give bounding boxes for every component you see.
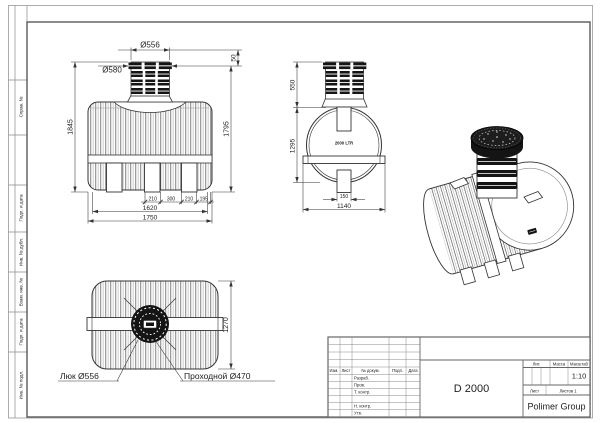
tb-row-prov: Пров. — [354, 383, 365, 388]
tb-stat-massa: Масса — [553, 362, 566, 367]
frame-label-vzam: Взам. инв. № — [19, 278, 24, 307]
label-manhole: Люк Ø556 — [60, 371, 99, 381]
front-view: Ø556 Ø580 50 1845 1795 210 300 210 195 1… — [68, 41, 243, 224]
label-passage: Проходной Ø470 — [184, 371, 251, 381]
dim-dia-lid: Ø580 — [102, 66, 122, 75]
dim-neck-height: 550 — [290, 79, 297, 90]
side-bottom-tab — [337, 170, 351, 193]
side-top-tab — [337, 107, 351, 131]
tb-col-list: Лист — [341, 368, 350, 373]
side-volume-label: 2000 LTR — [335, 141, 353, 146]
tb-sheets-label: Листов 1 — [559, 389, 577, 394]
dim-w-seg4: 195 — [200, 197, 209, 203]
title-block: Изм. Лист № докум. Подп. Дата Разраб. Пр… — [328, 337, 590, 417]
dim-w-seg1: 210 — [149, 197, 158, 203]
dim-dia-top: Ø556 — [140, 41, 160, 50]
tb-stat-lit: Лит. — [533, 362, 541, 367]
side-view: 2000 LTR 550 1295 150 1140 — [290, 62, 386, 213]
tb-col-data: Дата — [408, 368, 418, 373]
dim-w-seg3: 210 — [185, 197, 194, 203]
drawing-sheet: Справ. № Подп. и дата Инв. № дубл. Взам.… — [0, 0, 600, 423]
dim-h-total: 1845 — [68, 119, 75, 135]
tb-row-utv: Утв. — [354, 411, 362, 416]
side-band — [303, 156, 385, 164]
tb-row-tkontr: Т. контр. — [354, 390, 370, 395]
front-leg — [107, 163, 123, 192]
tb-col-izm: Изм. — [330, 368, 339, 373]
tb-col-podp: Подп. — [392, 368, 403, 373]
dim-w-total: 1750 — [143, 215, 158, 222]
tb-part-title: D 2000 — [454, 383, 489, 395]
dim-w-seg2: 300 — [167, 197, 176, 203]
dim-top-height: 1270 — [223, 317, 230, 333]
iso-leg — [508, 253, 523, 271]
tb-sheet-label: Лист — [530, 389, 539, 394]
tb-scale-value: 1:10 — [572, 372, 587, 381]
dim-body-diameter: 1295 — [290, 138, 297, 153]
dim-tab-width: 150 — [340, 194, 349, 200]
sheet-frame-labels: Справ. № Подп. и дата Инв. № дубл. Взам.… — [19, 97, 24, 400]
top-manhole — [131, 305, 169, 343]
frame-label-inv-dubl: Инв. № дубл. — [19, 238, 24, 266]
frame-label-podp1: Подп. и дата — [19, 194, 24, 222]
tb-row-nkontr: Н. контр. — [354, 404, 371, 409]
iso-neck — [471, 127, 523, 199]
dim-h-offset: 50 — [231, 54, 238, 62]
top-view: 1270 Люк Ø556 Проходной Ø470 — [58, 281, 275, 381]
front-neck — [128, 62, 173, 102]
dim-h-body: 1795 — [224, 121, 231, 137]
tb-company: Polimer Group — [527, 402, 585, 412]
dim-w-inner: 1620 — [143, 205, 158, 212]
tb-stat-masshtab: Масштаб — [570, 362, 589, 367]
iso-leg — [460, 267, 475, 285]
frame-label-inv-podl: Инв. № подл. — [19, 371, 24, 400]
tb-col-docnum: № докум. — [361, 368, 379, 373]
tb-row-razrab: Разраб. — [354, 376, 369, 381]
side-neck — [322, 62, 367, 107]
front-leg — [182, 163, 198, 192]
front-leg — [145, 163, 161, 192]
frame-label-podp2: Подп. и дата — [19, 318, 24, 346]
iso-view — [416, 127, 588, 291]
frame-label-sprav: Справ. № — [19, 97, 24, 118]
dim-side-width: 1140 — [337, 203, 351, 210]
front-band — [88, 155, 212, 163]
